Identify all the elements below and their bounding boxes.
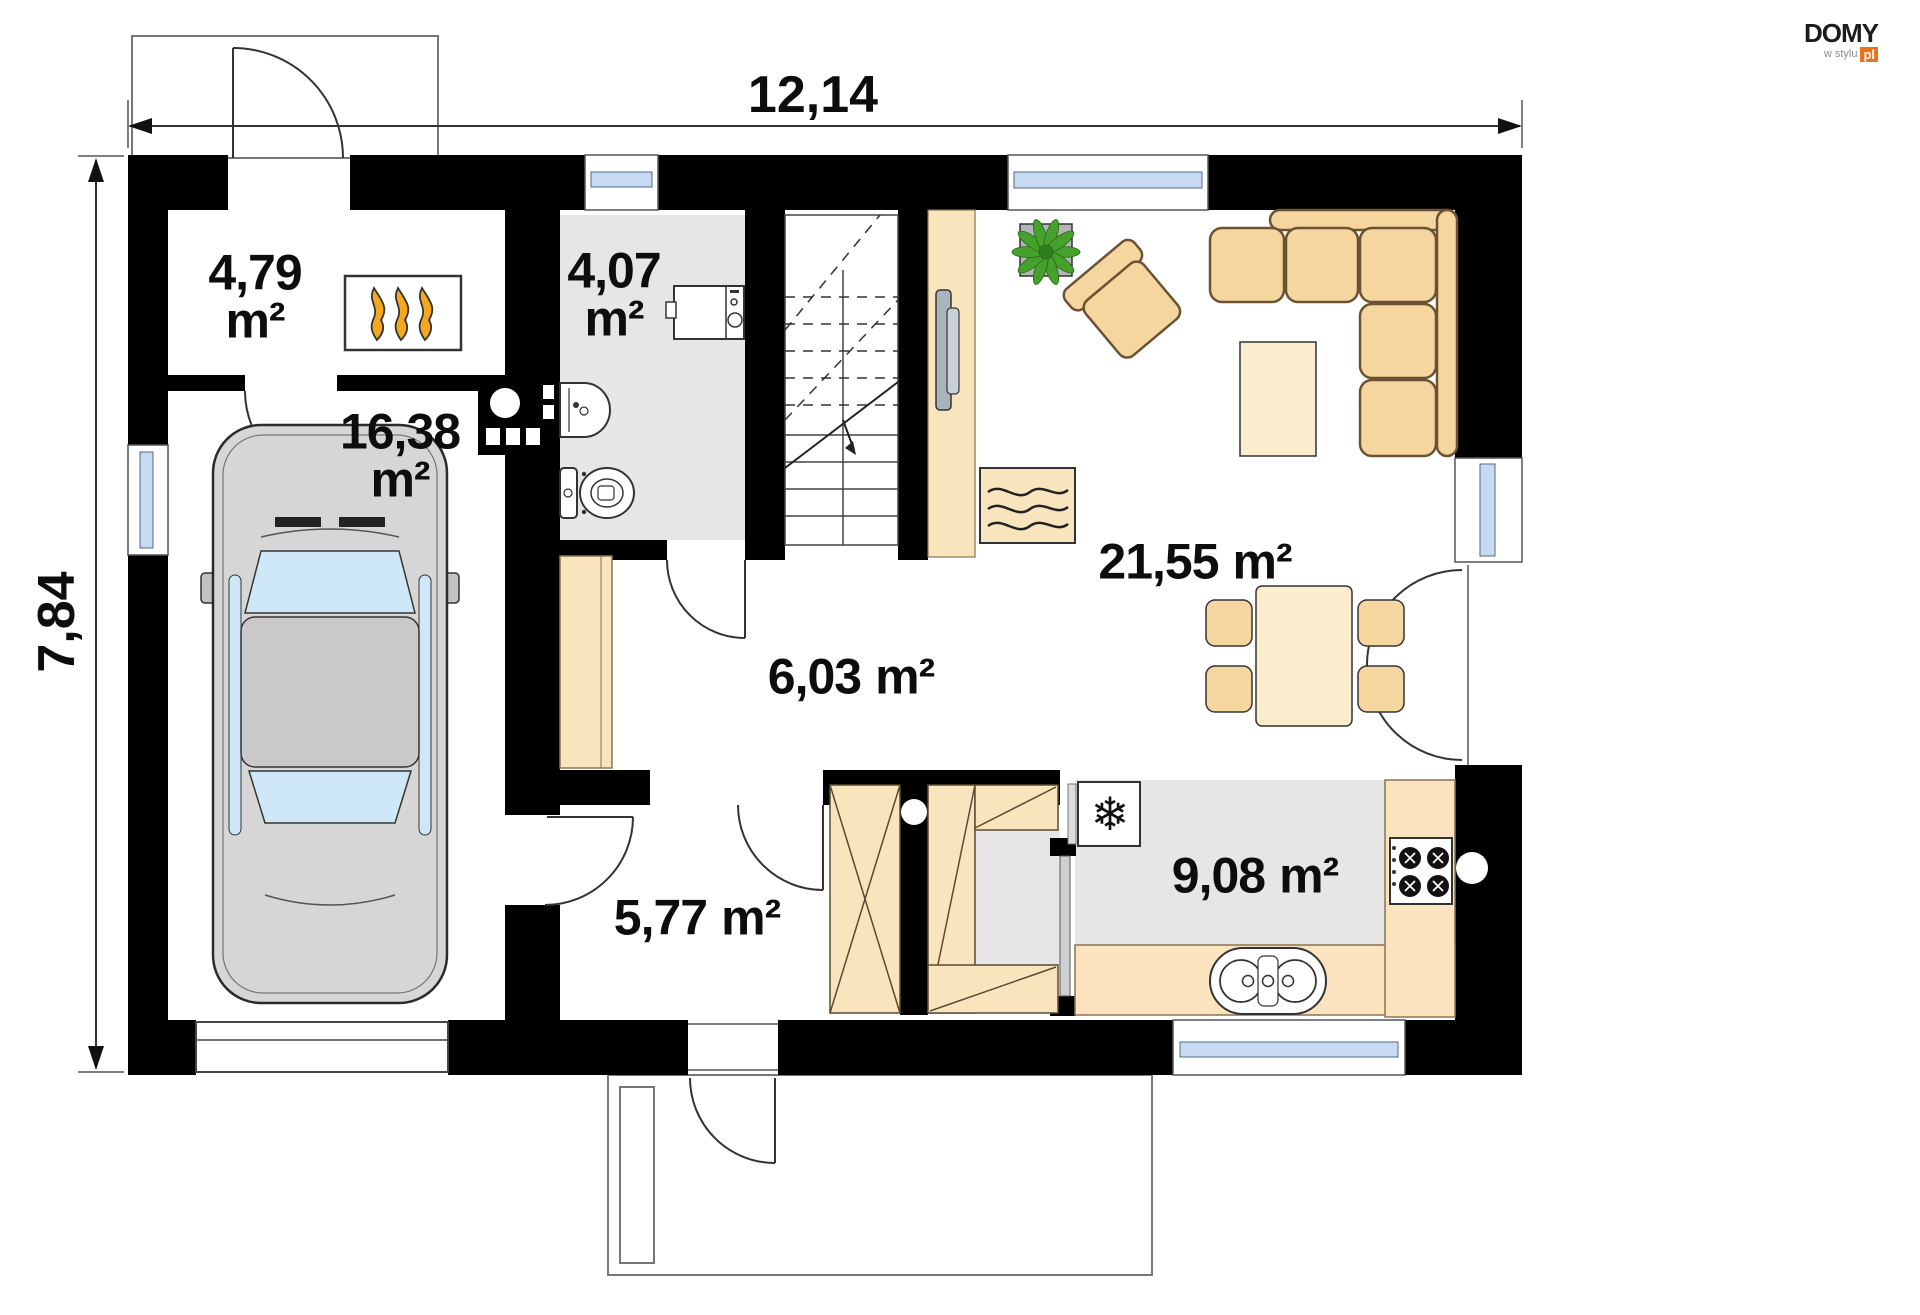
wall-segment: [505, 905, 560, 1020]
wall-segment: [658, 155, 1008, 210]
door-bathroom: [667, 560, 745, 638]
floor-plan-page: ❄ 4,79 m² 4,07 m² 16,38 m² 6,03 m² 5,77 …: [0, 0, 1920, 1315]
door-french-terrace: [1367, 565, 1468, 765]
wall-segment: [1405, 1020, 1522, 1075]
room-area: 9,08: [1172, 852, 1265, 900]
wall-segment: [128, 1020, 196, 1075]
room-unit: m²: [584, 295, 643, 343]
room-label-kitchen: 9,08 m²: [1172, 852, 1338, 900]
wall-segment: [778, 1020, 1173, 1075]
porch-step: [620, 1087, 654, 1263]
logo-brand-text: DOMY: [1804, 20, 1878, 46]
dining-chair: [1358, 600, 1404, 646]
tv-cabinet: [928, 210, 975, 557]
door-hall-vestibule: [738, 805, 823, 890]
room-label-living: 21,55 m²: [1098, 538, 1291, 586]
room-area: 4,07: [567, 248, 660, 296]
hall-wardrobe: [560, 556, 612, 768]
window-garage-left: [128, 445, 168, 555]
dining-table: [1256, 586, 1352, 726]
door-boiler-exterior: [233, 48, 343, 158]
sink-icon: [560, 383, 610, 437]
wall-segment: [448, 1020, 688, 1075]
vent-grille-icon: [506, 428, 520, 445]
toilet-icon: [560, 468, 634, 518]
pantry-floor: [975, 830, 1060, 965]
wall-segment: [505, 155, 560, 390]
vent-grille-icon: [543, 385, 554, 399]
room-unit: m²: [875, 653, 934, 701]
dining-set: [1206, 586, 1404, 726]
logo-tagline: w stylu: [1824, 49, 1858, 60]
wall-segment: [128, 155, 168, 445]
room-area: 6,03: [768, 653, 861, 701]
washing-machine-icon: [666, 286, 744, 339]
wall-segment: [745, 155, 785, 560]
room-unit: m²: [1233, 538, 1292, 586]
wall-segment: [168, 375, 245, 391]
garage-door: [196, 1022, 448, 1072]
fireplace-icon: [980, 468, 1075, 543]
duct-circle-icon: [1456, 852, 1488, 884]
room-area: 4,79: [208, 250, 301, 298]
post-circle-icon: [901, 799, 927, 825]
room-unit: m²: [370, 456, 429, 504]
entrance-porch: [608, 1075, 1152, 1275]
canopy-outline: [132, 36, 438, 158]
snowflake-icon: ❄: [1082, 784, 1138, 844]
car-icon: [201, 425, 459, 1003]
room-label-garage: 16,38 m²: [340, 409, 460, 504]
plant-icon: [1012, 218, 1080, 286]
room-area: 16,38: [340, 409, 460, 457]
wall-segment: [540, 770, 650, 805]
water-heater-icon: [490, 388, 520, 418]
armchair: [1060, 236, 1189, 366]
dining-chair: [1206, 600, 1252, 646]
room-area: 5,77: [614, 894, 707, 942]
dining-chair: [1206, 666, 1252, 712]
room-label-hall: 6,03 m²: [768, 653, 934, 701]
dining-chair: [1358, 666, 1404, 712]
stove-icon: [1390, 838, 1452, 904]
wall-segment: [337, 375, 480, 391]
room-area: 21,55: [1098, 538, 1218, 586]
vestibule-wardrobe: [830, 785, 900, 1013]
vent-grille-icon: [486, 428, 500, 445]
room-label-bathroom: 4,07 m²: [567, 248, 660, 343]
room-unit: m²: [721, 894, 780, 942]
kitchen-door-leaf: [1060, 856, 1070, 996]
wall-segment: [505, 390, 560, 815]
room-unit: m²: [1279, 852, 1338, 900]
room-unit: m²: [225, 297, 284, 345]
room-label-vestibule: 5,77 m²: [614, 894, 780, 942]
staircase: [785, 215, 898, 545]
vent-grille-icon: [543, 405, 554, 419]
dimension-width: 12,14: [748, 65, 878, 125]
wall-segment: [1455, 155, 1522, 458]
window-bathroom-top: [585, 155, 658, 210]
window-living-right: [1455, 458, 1522, 562]
window-kitchen-bottom: [1173, 1020, 1405, 1075]
wall-segment: [128, 555, 168, 1075]
vent-grille-icon: [526, 428, 540, 445]
coffee-table: [1240, 342, 1316, 456]
room-label-boiler: 4,79 m²: [208, 250, 301, 345]
wall-segment: [898, 155, 928, 560]
floor-plan-drawing: [0, 0, 1920, 1315]
logo-suffix: pl: [1860, 47, 1878, 62]
brand-logo: DOMY w stylu pl: [1804, 20, 1878, 62]
dimension-height: 7,84: [27, 571, 87, 672]
window-living-top: [1008, 155, 1208, 210]
furnace-icon: [345, 276, 461, 350]
kitchen-sink-icon: [1210, 948, 1326, 1014]
